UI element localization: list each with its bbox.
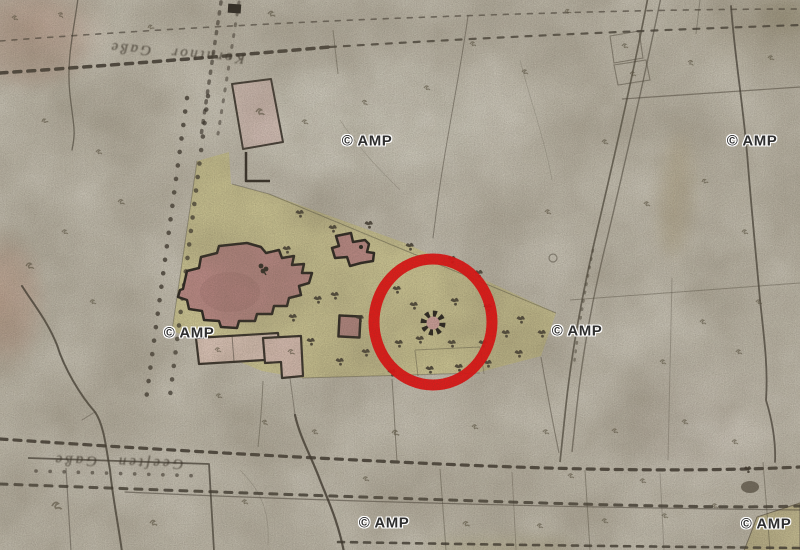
watermark: © AMP	[552, 323, 603, 340]
watermark: © AMP	[741, 516, 792, 533]
watermark: © AMP	[359, 515, 410, 532]
watermark: © AMP	[727, 133, 778, 150]
map-image: Kornthor Gaße Geeſten Gaße © AMP © AMP ©…	[0, 0, 800, 550]
watermark: © AMP	[342, 133, 393, 150]
watermark: © AMP	[164, 325, 215, 342]
